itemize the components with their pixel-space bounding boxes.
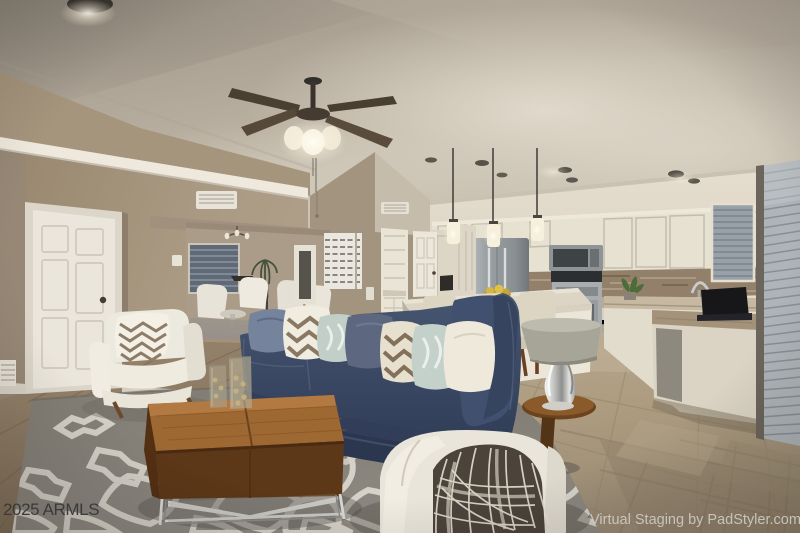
svg-text:2025 ARMLS: 2025 ARMLS (3, 500, 99, 519)
svg-text:Virtual Staging by PadStyler.c: Virtual Staging by PadStyler.com (590, 512, 800, 528)
